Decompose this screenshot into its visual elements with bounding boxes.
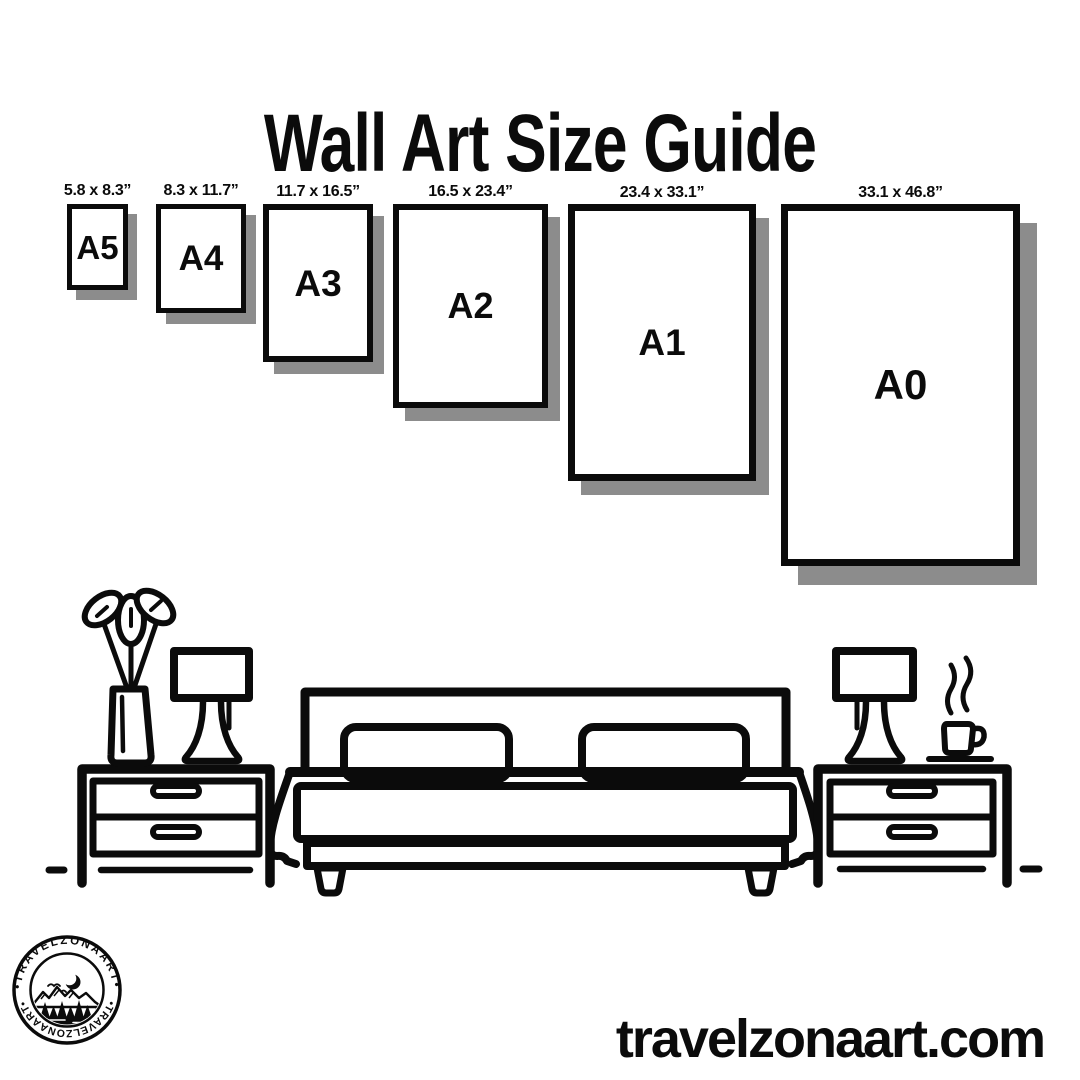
frame-a4-dimensions-label: 8.3 x 11.7”	[164, 182, 239, 200]
frame-a5-dimensions-label: 5.8 x 8.3”	[64, 182, 131, 200]
frame-a1-size-label: A1	[638, 324, 685, 361]
table-lamp-icon	[836, 651, 913, 761]
double-bed-icon	[270, 692, 818, 893]
website-text: travelzonaart.com	[560, 1008, 1080, 1070]
frame-a0: 33.1 x 46.8” A0	[781, 204, 1020, 566]
frame-a4: 8.3 x 11.7” A4	[156, 204, 246, 313]
frame-a1-dimensions-label: 23.4 x 33.1”	[620, 184, 704, 202]
frame-a0-size-label: A0	[874, 364, 928, 406]
frame-a2-dimensions-label: 16.5 x 23.4”	[428, 183, 512, 201]
floor-line-icon	[49, 869, 1039, 870]
table-lamp-icon	[174, 651, 249, 761]
frame-a2-size-label: A2	[447, 288, 493, 324]
plant-vase-icon	[79, 584, 179, 763]
steam-icon	[948, 658, 971, 713]
frame-a5: 5.8 x 8.3” A5	[67, 204, 128, 290]
nightstand-icon	[818, 769, 1007, 883]
coffee-cup-icon	[929, 658, 991, 759]
frame-a2: 16.5 x 23.4” A2	[393, 204, 548, 408]
frame-a5-size-label: A5	[76, 231, 118, 264]
page-title: Wall Art Size Guide	[130, 99, 951, 189]
frame-a1: 23.4 x 33.1” A1	[568, 204, 756, 481]
travelzonaart-badge-icon: •TRAVELZONAART• •TRAVELZONAART•	[7, 930, 127, 1050]
frame-a0-dimensions-label: 33.1 x 46.8”	[858, 184, 942, 202]
frame-a3-size-label: A3	[294, 265, 341, 302]
frame-a3-dimensions-label: 11.7 x 16.5”	[276, 183, 360, 201]
poster: Wall Art Size Guide 5.8 x 8.3” A5 8.3 x …	[0, 0, 1080, 1080]
nightstand-icon	[82, 769, 270, 883]
frame-a3: 11.7 x 16.5” A3	[263, 204, 373, 362]
frame-a4-size-label: A4	[179, 241, 224, 276]
pillow-icon	[344, 727, 746, 779]
